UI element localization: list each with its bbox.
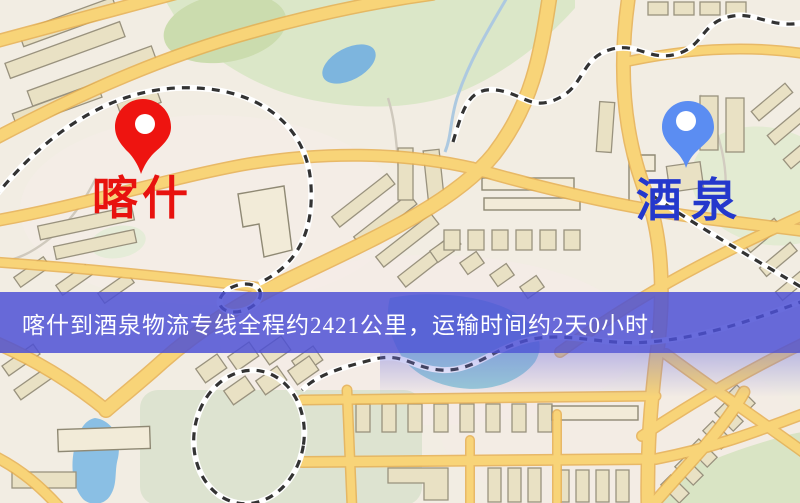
destination-label: 酒泉	[636, 178, 746, 224]
banner-fade	[380, 353, 800, 397]
route-info-text: 喀什到酒泉物流专线全程约2421公里，运输时间约2天0小时.	[22, 306, 656, 340]
map-canvas	[0, 0, 800, 503]
route-info-banner: 喀什到酒泉物流专线全程约2421公里，运输时间约2天0小时.	[0, 292, 800, 353]
origin-label: 喀什	[92, 176, 192, 222]
logistics-route-map: 喀什 酒泉 喀什到酒泉物流专线全程约2421公里，运输时间约2天0小时.	[0, 0, 800, 503]
